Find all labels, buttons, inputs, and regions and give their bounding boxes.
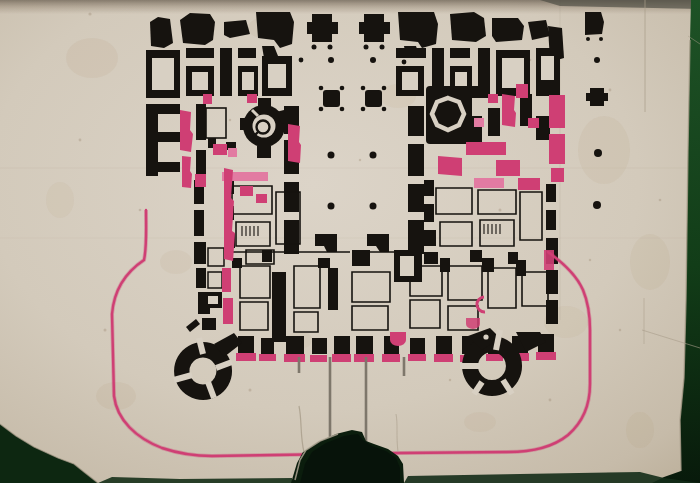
stair-glyph-circle: [257, 121, 270, 134]
paper-sheet: [0, 0, 700, 483]
scanned-plan-photo: [0, 0, 700, 483]
octagonal-tower: [426, 86, 472, 144]
floor-plan-drawing: [0, 0, 700, 483]
